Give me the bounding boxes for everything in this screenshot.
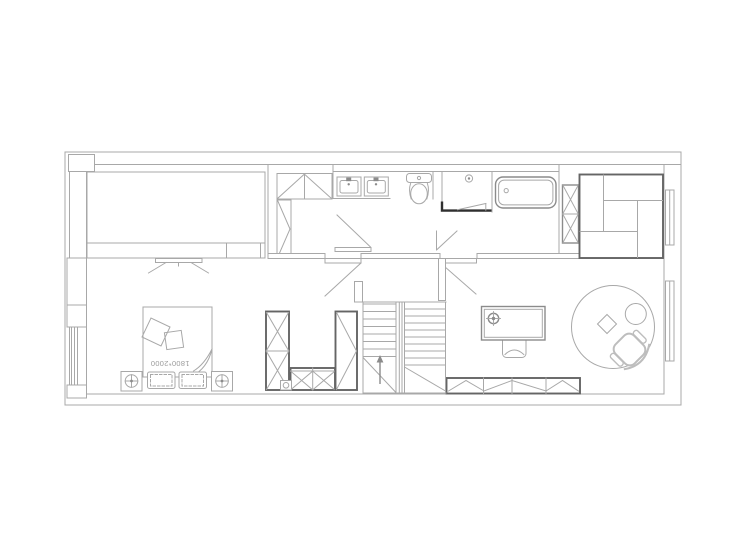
bed-size-label: 1800*2000 xyxy=(151,359,190,368)
shower-threshold xyxy=(442,202,492,211)
toilet-tank xyxy=(407,174,432,183)
modular-sofa xyxy=(580,175,664,259)
tv-stand xyxy=(149,259,209,274)
door-swing xyxy=(437,231,457,250)
double-bed: 1800*2000 xyxy=(142,307,212,389)
hall-side-cabinet xyxy=(277,200,291,258)
window-sill xyxy=(67,305,87,327)
office-chair xyxy=(607,327,655,375)
wall-stub xyxy=(439,259,446,301)
door-swing xyxy=(337,215,371,247)
stair-up-arrow-icon xyxy=(377,355,384,384)
wardrobe-bottom xyxy=(291,368,336,390)
window-study xyxy=(666,281,675,361)
lounge xyxy=(563,175,675,259)
wardrobe-left xyxy=(266,312,289,391)
door-shower xyxy=(437,231,458,250)
bathtub xyxy=(496,177,557,208)
low-storage-cabinet xyxy=(447,378,581,394)
window xyxy=(67,258,87,305)
shower xyxy=(442,172,492,211)
drain-icon xyxy=(504,189,508,193)
wall-column xyxy=(69,155,95,172)
master-bedroom: 1800*2000 xyxy=(87,172,265,391)
wardrobe-bank xyxy=(87,172,265,258)
door-stop xyxy=(281,381,292,391)
bathroom xyxy=(333,165,559,254)
hall-top-cabinet xyxy=(277,174,332,200)
door-leaf xyxy=(335,248,371,252)
bookshelf xyxy=(563,185,579,243)
vanity-sink-right xyxy=(364,177,388,196)
walk-in-closet xyxy=(266,312,357,391)
window-sill xyxy=(67,385,87,398)
stair-treads-right xyxy=(405,309,446,365)
door-leaf xyxy=(325,259,361,264)
nightstand-left xyxy=(121,372,142,392)
toilet-bowl xyxy=(411,184,428,204)
decor-diamond xyxy=(598,315,617,334)
wall-stub xyxy=(355,282,363,303)
study xyxy=(439,259,675,394)
vanity-sink-left xyxy=(337,177,361,196)
shower-glass-door xyxy=(458,204,486,210)
window-lounge xyxy=(666,190,675,245)
faucet-icon xyxy=(374,178,379,182)
faucet-icon xyxy=(346,178,351,182)
desk xyxy=(482,307,546,341)
side-table xyxy=(625,304,646,325)
stair-treads-left xyxy=(364,304,396,357)
door-bathroom xyxy=(335,215,371,252)
wardrobe-right xyxy=(336,312,358,391)
floor-plan-canvas: 1800*2000 xyxy=(0,0,740,550)
nightstand-right xyxy=(212,372,233,392)
stair-break-line xyxy=(405,367,446,391)
floor-plan-drawing: 1800*2000 xyxy=(0,0,740,550)
toilet xyxy=(407,174,432,204)
staircase xyxy=(355,282,447,394)
